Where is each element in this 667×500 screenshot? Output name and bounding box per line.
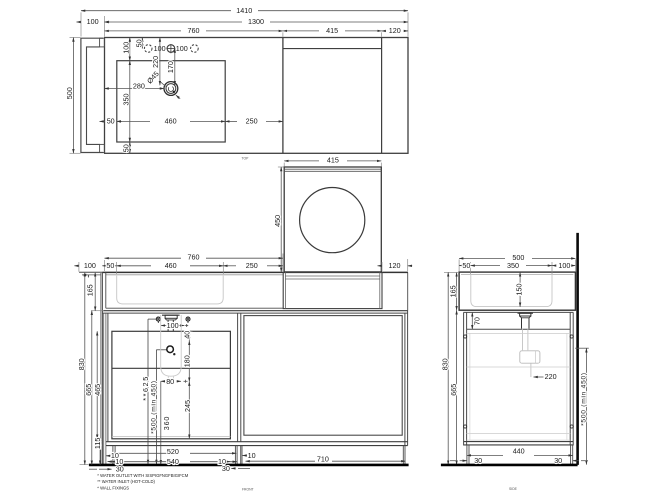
svg-text:100: 100 xyxy=(558,261,570,270)
svg-text:500: 500 xyxy=(65,87,74,99)
svg-text:220: 220 xyxy=(151,56,160,68)
svg-text:440: 440 xyxy=(513,446,525,455)
svg-text:10: 10 xyxy=(248,451,256,460)
svg-text:180: 180 xyxy=(182,355,191,367)
svg-text:30: 30 xyxy=(474,456,482,465)
svg-text:50: 50 xyxy=(107,117,115,126)
svg-text:120: 120 xyxy=(389,261,401,270)
svg-text:540: 540 xyxy=(167,457,179,466)
svg-text:FRONT: FRONT xyxy=(242,488,254,492)
svg-text:30: 30 xyxy=(554,456,562,465)
svg-text:40: 40 xyxy=(182,331,191,339)
svg-text:830: 830 xyxy=(440,358,449,370)
svg-text:*500 (min 450): *500 (min 450) xyxy=(581,372,588,426)
svg-text:100: 100 xyxy=(121,42,130,54)
svg-text:70: 70 xyxy=(472,317,481,325)
svg-text:250: 250 xyxy=(246,261,258,270)
svg-text:120: 120 xyxy=(389,26,401,35)
svg-text:350: 350 xyxy=(507,261,519,270)
svg-text:710: 710 xyxy=(317,455,329,464)
svg-text:760: 760 xyxy=(188,26,200,35)
svg-text:760: 760 xyxy=(188,253,200,262)
svg-text:450: 450 xyxy=(273,215,282,227)
svg-text:**625: **625 xyxy=(141,375,150,401)
svg-text:50: 50 xyxy=(121,144,130,152)
svg-text:460: 460 xyxy=(165,261,177,270)
svg-text:100: 100 xyxy=(167,321,179,330)
svg-text:150: 150 xyxy=(515,284,524,296)
svg-text:30: 30 xyxy=(222,464,230,473)
svg-text:280: 280 xyxy=(133,82,145,91)
svg-text:SIDE: SIDE xyxy=(509,487,518,491)
svg-text:360: 360 xyxy=(162,416,171,430)
svg-text:50: 50 xyxy=(134,39,143,47)
svg-text:100: 100 xyxy=(84,261,96,270)
svg-text:115: 115 xyxy=(93,438,102,449)
svg-text:415: 415 xyxy=(326,26,338,35)
svg-text:80: 80 xyxy=(166,377,174,386)
svg-text:830: 830 xyxy=(77,358,86,370)
svg-text:100: 100 xyxy=(87,17,99,26)
svg-text:665: 665 xyxy=(449,384,458,396)
svg-text:* WATER OUTLET WITH SISPIGFNGF: * WATER OUTLET WITH SISPIGFNGFBIGIFCM xyxy=(97,473,188,478)
svg-text:350: 350 xyxy=(121,94,130,106)
svg-text:1300: 1300 xyxy=(248,17,264,26)
svg-text:245: 245 xyxy=(183,400,192,412)
svg-text:415: 415 xyxy=(327,155,339,164)
svg-text:460: 460 xyxy=(165,117,177,126)
svg-text:170: 170 xyxy=(166,61,175,73)
svg-text:*500 (min 450): *500 (min 450) xyxy=(151,380,158,434)
svg-text:220: 220 xyxy=(545,372,557,381)
svg-text:1410: 1410 xyxy=(236,6,252,15)
svg-text:165: 165 xyxy=(85,284,94,296)
svg-text:520: 520 xyxy=(167,447,179,456)
svg-text:665: 665 xyxy=(84,384,93,396)
svg-text:50: 50 xyxy=(106,261,114,270)
svg-text:100: 100 xyxy=(176,44,188,53)
svg-text:* WALL FIXINGS: * WALL FIXINGS xyxy=(97,486,129,491)
svg-text:250: 250 xyxy=(246,117,258,126)
svg-text:TOP: TOP xyxy=(242,157,250,161)
svg-text:** WATER INLET (HOT-COLD): ** WATER INLET (HOT-COLD) xyxy=(97,479,155,484)
svg-text:165: 165 xyxy=(448,285,457,297)
svg-text:465: 465 xyxy=(93,384,102,396)
svg-text:50: 50 xyxy=(462,261,470,270)
